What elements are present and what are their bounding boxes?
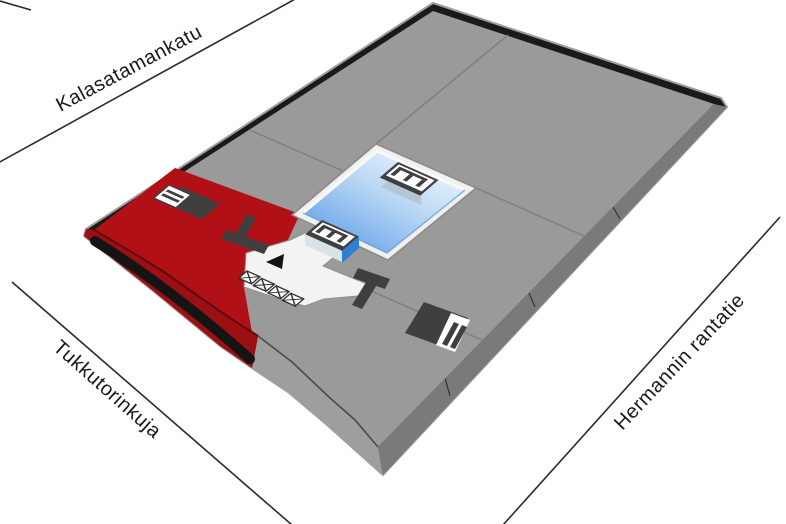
street-label-kalasatamankatu: Kalasatamankatu — [52, 21, 205, 117]
site-plan-svg: Kalasatamankatu Tukkutorinkuja Hermannin… — [0, 0, 786, 524]
street-label-hermannin-rantatie: Hermannin rantatie — [610, 289, 749, 434]
site-plan-illustration: Kalasatamankatu Tukkutorinkuja Hermannin… — [0, 0, 786, 524]
street-line-corner-tick — [0, 1, 31, 10]
street-label-tukkutorinkuja: Tukkutorinkuja — [49, 336, 166, 443]
